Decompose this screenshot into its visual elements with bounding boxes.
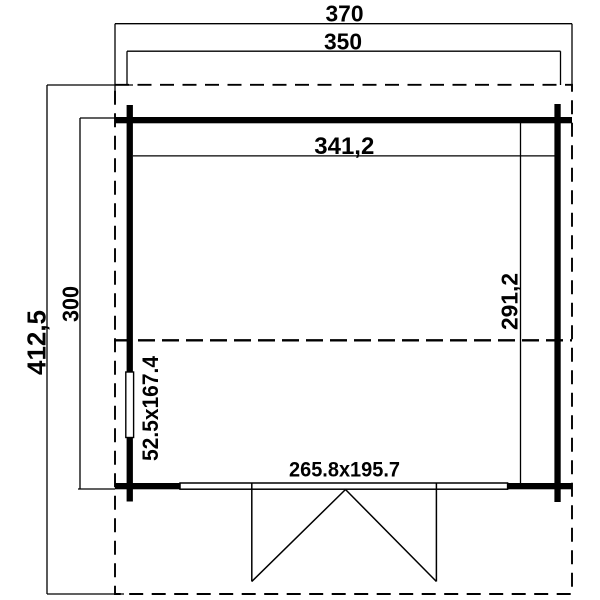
svg-text:412,5: 412,5 <box>22 310 52 375</box>
svg-text:350: 350 <box>324 29 362 55</box>
svg-text:341,2: 341,2 <box>314 133 374 160</box>
svg-text:370: 370 <box>326 1 364 27</box>
svg-text:300: 300 <box>58 286 84 322</box>
svg-text:52.5x167.4: 52.5x167.4 <box>138 355 163 461</box>
svg-text:291,2: 291,2 <box>497 273 523 330</box>
svg-text:265.8x195.7: 265.8x195.7 <box>289 458 400 482</box>
